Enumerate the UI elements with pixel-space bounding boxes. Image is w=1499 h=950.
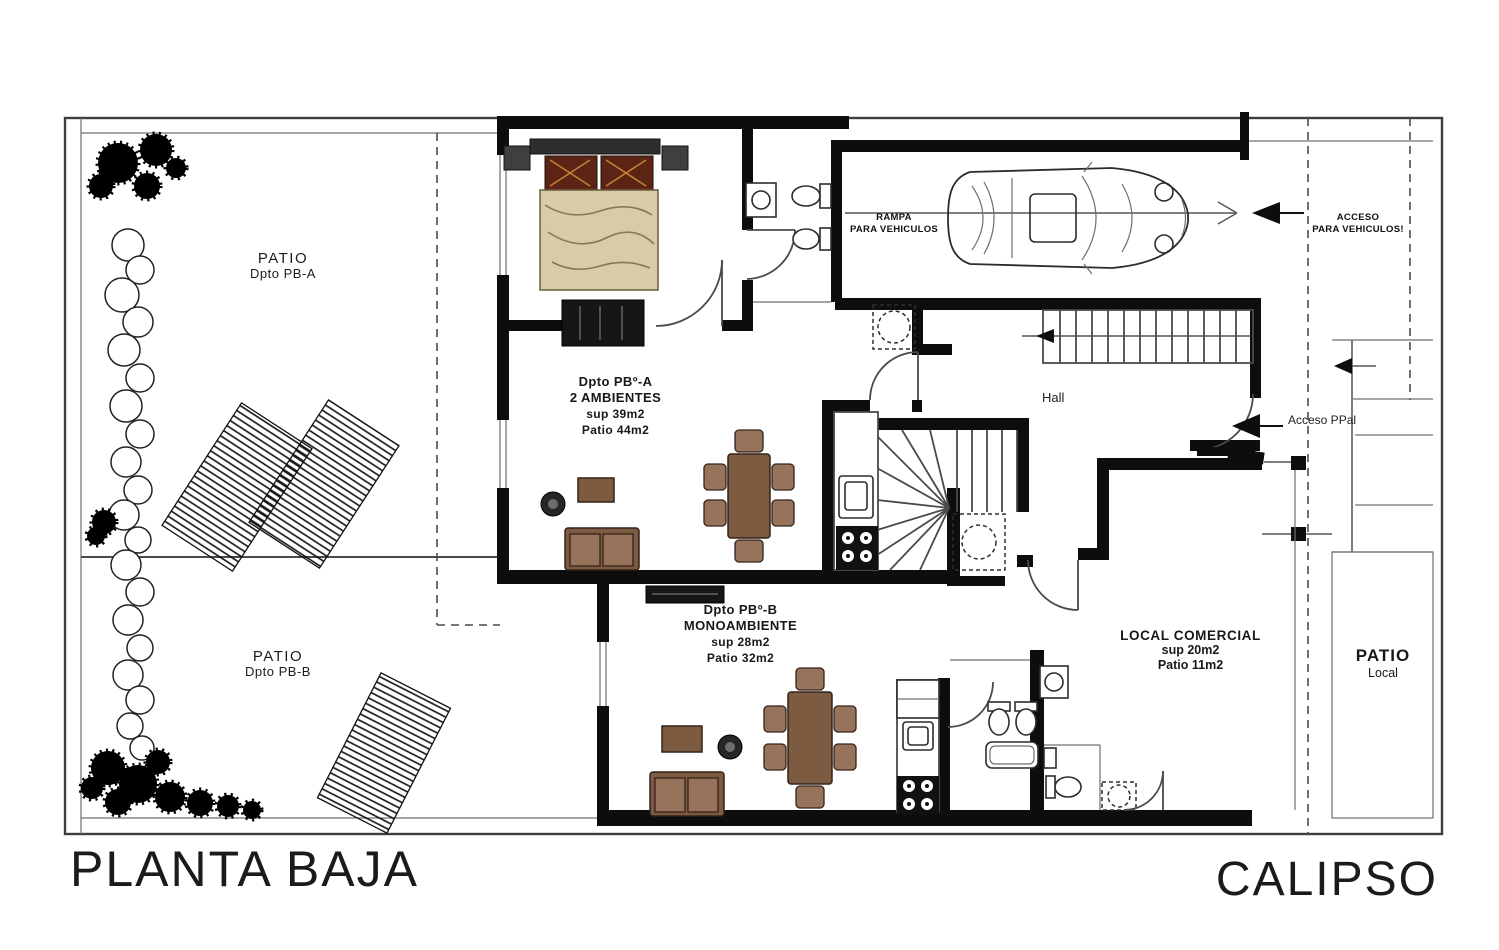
stairs-icon [1022,310,1253,363]
sofa-icon [650,772,724,816]
dining-table-icon [704,430,794,562]
main-access-label: Acceso PPal [1288,413,1398,427]
ramp-label: RAMPA PARA VEHICULOS [838,212,950,236]
patio-a-label: PATIO Dpto PB-A [198,250,368,282]
floor-plan: PATIO Dpto PB-A PATIO Dpto PB-B Dpto PBº… [0,0,1499,950]
sideboard-icon [646,586,724,603]
drawing-title: PLANTA BAJA [70,840,419,898]
plant-icon [541,492,565,516]
main-access-arrow-icon [1232,414,1283,438]
patio-b-label: PATIO Dpto PB-B [193,648,363,680]
hedge-icon [105,229,154,760]
vehicle-access-arrow-icon [1252,202,1304,224]
floor-plan-drawing [0,0,1499,950]
kitchen-icon [834,412,878,570]
dpto-b-label: Dpto PBº-B MONOAMBIENTE sup 28m2 Patio 3… [648,602,833,666]
dining-table-icon [764,668,856,808]
local-comercial-label: LOCAL COMERCIAL sup 20m2 Patio 11m2 [1098,628,1283,673]
bathroom-fixtures [1044,745,1100,810]
kitchen-icon [897,680,939,814]
sun-lounger-icon [317,673,450,833]
table-icon [662,726,702,752]
vehicle-access-label: ACCESO PARA VEHICULOS! [1299,212,1417,236]
patio-local-label: PATIO Local [1336,646,1430,680]
sofa-icon [565,528,639,570]
project-name: CALIPSO [1160,852,1438,907]
tree-icon [89,134,186,199]
hall-label: Hall [1042,390,1102,405]
car-icon [948,162,1188,274]
wardrobe-icon [562,300,644,346]
table-icon [578,478,614,502]
bathroom-fixtures [746,183,831,302]
entry-path [1262,340,1433,818]
plant-icon [718,735,742,759]
dpto-a-label: Dpto PBº-A 2 AMBIENTES sup 39m2 Patio 44… [528,374,703,438]
bed-icon [504,139,688,290]
